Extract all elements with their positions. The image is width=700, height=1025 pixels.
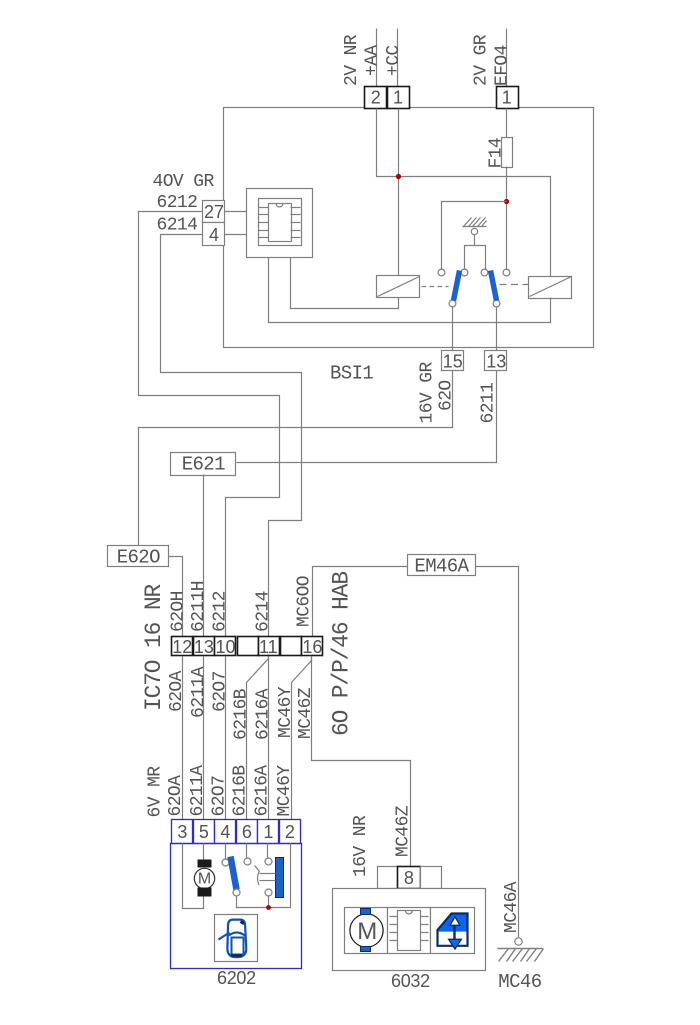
svg-text:2V NR: 2V NR xyxy=(342,34,362,86)
svg-text:E62O: E62O xyxy=(117,546,160,568)
svg-text:62OH: 62OH xyxy=(169,591,189,632)
svg-text:4OV GR: 4OV GR xyxy=(153,172,215,192)
svg-text:EFO4: EFO4 xyxy=(493,45,513,86)
svg-text:MC46Z: MC46Z xyxy=(394,805,414,857)
svg-text:6O P/P/46 HAB: 6O P/P/46 HAB xyxy=(329,572,355,736)
svg-text:62O7: 62O7 xyxy=(211,671,231,712)
svg-text:6211: 6211 xyxy=(479,383,499,424)
svg-text:1: 1 xyxy=(502,88,512,108)
svg-text:2: 2 xyxy=(285,822,295,842)
svg-text:6212: 6212 xyxy=(211,591,231,632)
svg-text:IC7O 16 NR: IC7O 16 NR xyxy=(141,584,167,711)
svg-text:8: 8 xyxy=(404,868,414,888)
svg-text:62O7: 62O7 xyxy=(210,776,230,817)
svg-text:62OA: 62OA xyxy=(166,775,186,817)
svg-text:2: 2 xyxy=(371,88,381,108)
svg-text:MC46Y: MC46Y xyxy=(275,765,295,817)
svg-text:2V GR: 2V GR xyxy=(472,34,492,86)
svg-text:13: 13 xyxy=(194,637,214,657)
svg-text:1: 1 xyxy=(393,88,403,108)
svg-text:MC46A: MC46A xyxy=(502,881,522,933)
svg-text:BSI1: BSI1 xyxy=(330,363,373,385)
svg-text:6032: 6032 xyxy=(391,971,430,991)
svg-text:M: M xyxy=(357,918,377,945)
svg-text:4: 4 xyxy=(220,822,230,842)
svg-text:M: M xyxy=(198,871,211,888)
svg-text:+CC: +CC xyxy=(384,45,404,76)
svg-text:15: 15 xyxy=(443,352,463,372)
svg-text:6V MR: 6V MR xyxy=(145,766,165,818)
svg-text:6214: 6214 xyxy=(254,591,274,632)
svg-text:16: 16 xyxy=(302,637,322,657)
svg-text:6212: 6212 xyxy=(157,193,198,213)
svg-text:3: 3 xyxy=(177,822,187,842)
svg-text:6202: 6202 xyxy=(217,968,256,988)
svg-text:MC6OO: MC6OO xyxy=(295,576,315,627)
svg-text:EM46A: EM46A xyxy=(414,556,469,578)
svg-text:1: 1 xyxy=(263,822,273,842)
svg-text:MC46: MC46 xyxy=(498,971,541,993)
svg-text:6211A: 6211A xyxy=(188,765,208,817)
svg-text:16V GR: 16V GR xyxy=(418,361,438,423)
svg-text:6216B: 6216B xyxy=(232,688,252,740)
svg-text:6216A: 6216A xyxy=(254,688,274,740)
svg-text:F14: F14 xyxy=(487,138,507,169)
svg-text:6216A: 6216A xyxy=(253,765,273,817)
svg-text:6211H: 6211H xyxy=(189,581,209,632)
svg-text:MC46Y: MC46Y xyxy=(276,686,296,738)
svg-text:62O: 62O xyxy=(437,380,457,411)
svg-text:6211A: 6211A xyxy=(189,666,209,718)
svg-text:27: 27 xyxy=(204,202,224,222)
svg-text:+AA: +AA xyxy=(363,45,383,76)
svg-text:4: 4 xyxy=(209,225,219,245)
svg-text:11: 11 xyxy=(259,637,278,657)
svg-text:E621: E621 xyxy=(182,454,225,476)
svg-text:MC46Z: MC46Z xyxy=(296,687,316,739)
svg-text:6214: 6214 xyxy=(157,216,198,236)
svg-text:12: 12 xyxy=(172,637,192,657)
svg-text:13: 13 xyxy=(486,352,506,372)
svg-text:6216B: 6216B xyxy=(231,765,251,817)
svg-text:10: 10 xyxy=(216,637,236,657)
svg-text:62OA: 62OA xyxy=(167,670,187,712)
svg-text:6: 6 xyxy=(242,822,252,842)
svg-text:5: 5 xyxy=(199,822,209,842)
svg-text:16V NR: 16V NR xyxy=(351,815,371,877)
